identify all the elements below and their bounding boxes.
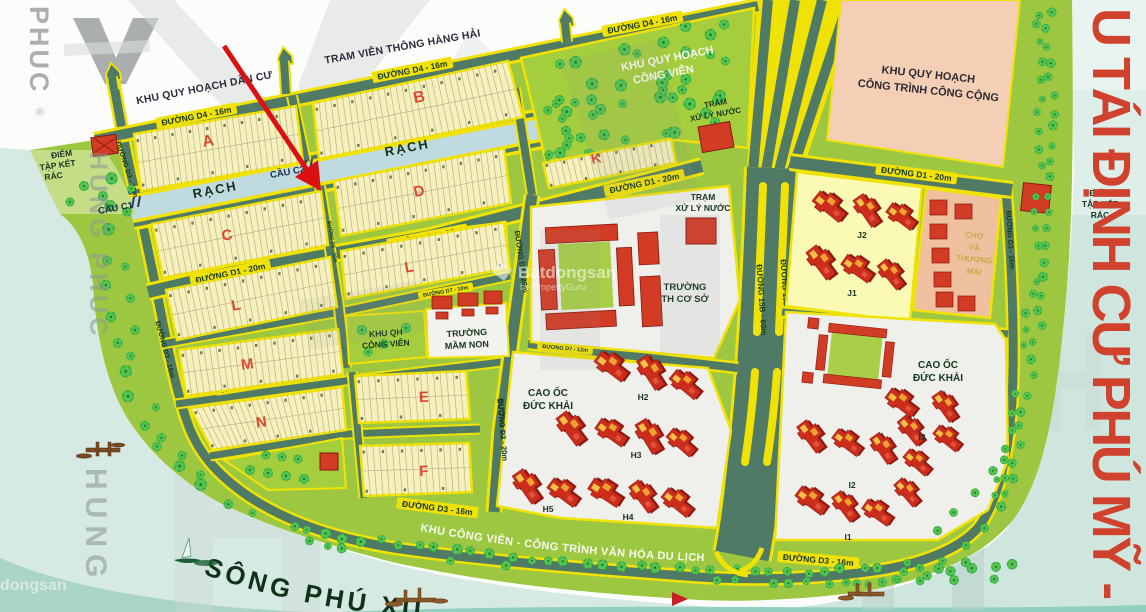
svg-text:ĐỨC KHẢI: ĐỨC KHẢI <box>523 399 573 412</box>
svg-text:H5: H5 <box>543 504 554 514</box>
svg-text:H2: H2 <box>638 392 649 402</box>
svg-text:E: E <box>419 389 430 406</box>
svg-text:U TÁI ĐỊNH CƯ PHÚ MỸ - C: U TÁI ĐỊNH CƯ PHÚ MỸ - C <box>1081 8 1141 612</box>
svg-text:J1: J1 <box>847 288 857 298</box>
svg-text:TRƯỜNG: TRƯỜNG <box>446 326 487 339</box>
svg-text:CAO ỐC: CAO ỐC <box>918 357 958 371</box>
svg-text:CHỢ: CHỢ <box>965 230 984 241</box>
svg-text:PHUC: PHUC <box>24 6 54 95</box>
svg-text:H4: H4 <box>623 512 634 522</box>
svg-text:I1: I1 <box>844 532 851 542</box>
svg-text:HUNG PHUC: HUNG PHUC <box>84 152 112 339</box>
svg-text:XỬ LÝ NƯỚC: XỬ LÝ NƯỚC <box>676 202 731 213</box>
svg-text:F: F <box>419 463 429 480</box>
svg-text:H3: H3 <box>631 450 642 460</box>
svg-text:I3: I3 <box>918 432 925 442</box>
svg-text:J2: J2 <box>857 230 867 240</box>
svg-text:HUNG: HUNG <box>79 468 112 584</box>
svg-text:ĐỨC KHẢI: ĐỨC KHẢI <box>913 371 963 384</box>
svg-text:M: M <box>240 355 255 374</box>
svg-text:VÀ: VÀ <box>968 243 980 253</box>
svg-text:MẠI: MẠI <box>967 266 982 276</box>
svg-text:by PropertyGuru: by PropertyGuru <box>520 282 586 292</box>
svg-text:®: ® <box>33 108 45 116</box>
svg-text:dongsan: dongsan <box>0 577 67 594</box>
svg-text:Batdongsan: Batdongsan <box>518 263 616 282</box>
svg-text:I2: I2 <box>848 480 855 490</box>
svg-text:CAO ỐC: CAO ỐC <box>528 385 568 399</box>
